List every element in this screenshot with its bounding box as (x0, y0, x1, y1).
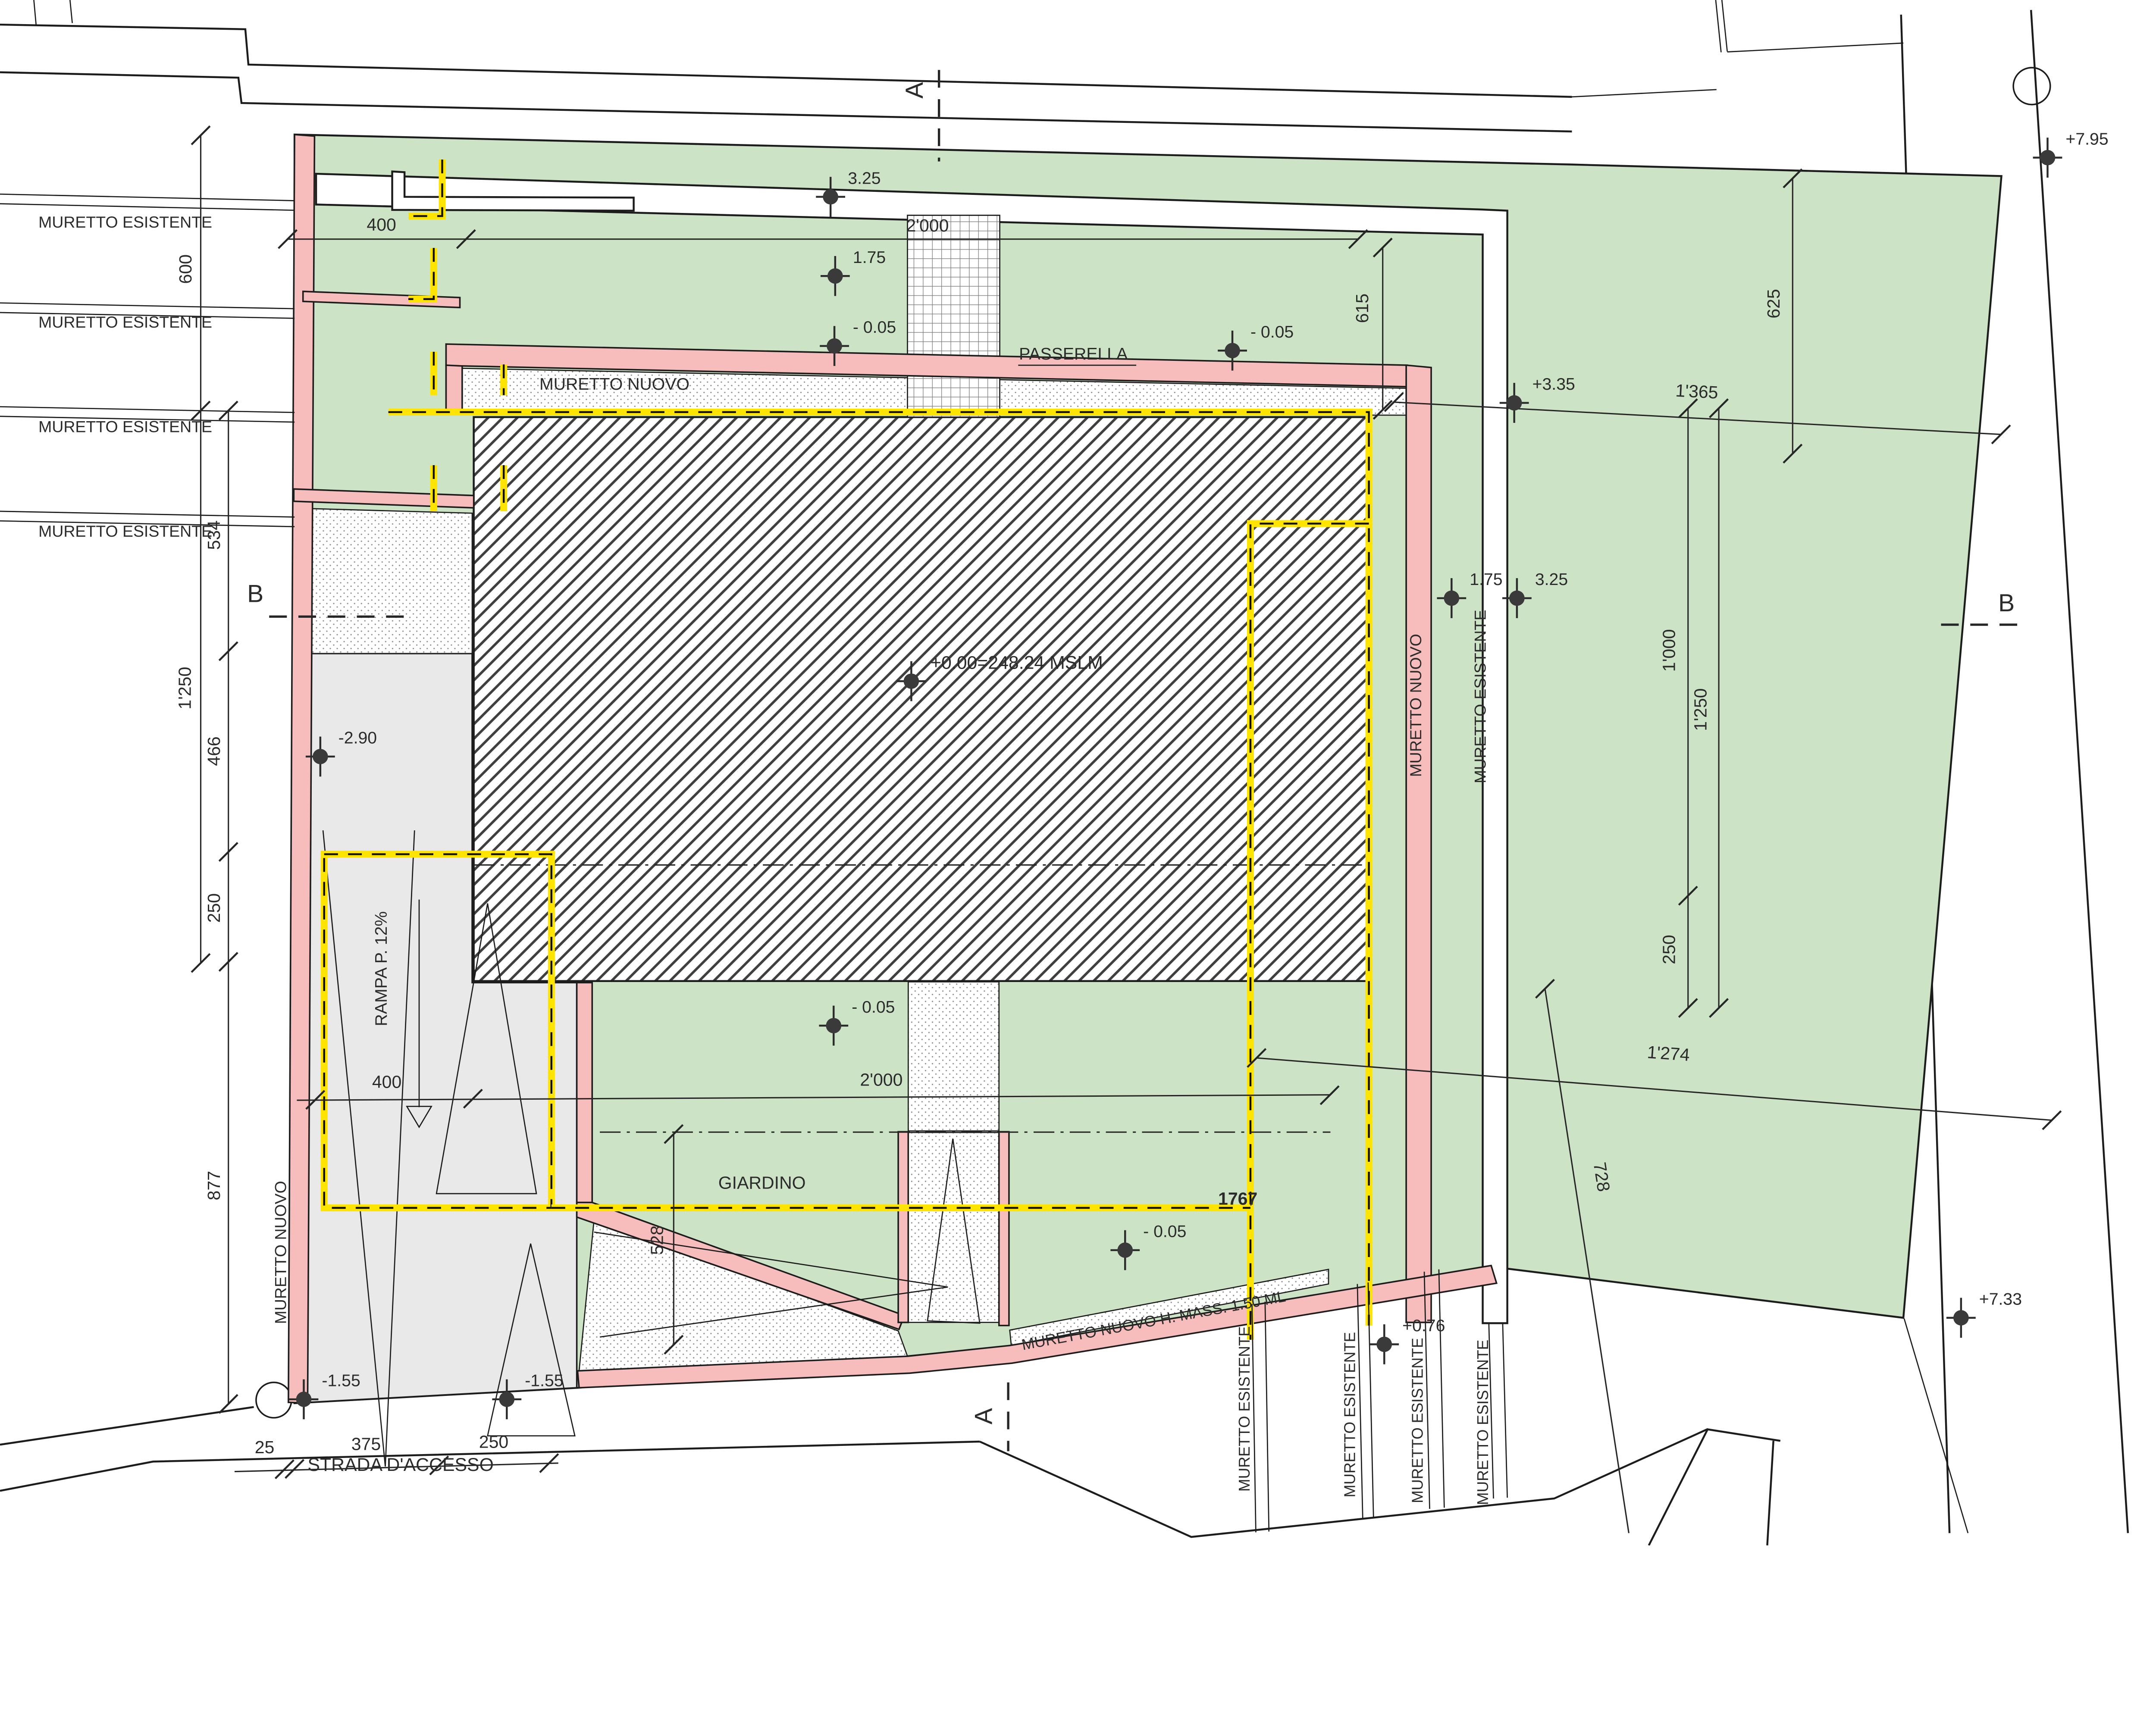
survey-circle-top-right (2013, 68, 2050, 105)
site-plan-sheet: MURETTO ESISTENTE MURETTO ESISTENTE MURE… (0, 0, 2156, 1545)
wall-label-bottom3: MURETTO ESISTENTE (1409, 1338, 1426, 1503)
wall-label-row3: MURETTO ESISTENTE (38, 417, 212, 435)
dim-bot-375: 375 (351, 1434, 381, 1454)
label-muretto-nuovo-right: MURETTO NUOVO (1407, 634, 1425, 777)
section-b-left: B (247, 580, 263, 607)
wall-label-bottom1: MURETTO ESISTENTE (1236, 1326, 1253, 1492)
elev-155-a: -1.55 (322, 1371, 360, 1390)
label-muretto-nuovo-left: MURETTO NUOVO (271, 1181, 289, 1324)
dim-top-400: 400 (367, 215, 396, 235)
elev-795: +7.95 (2065, 129, 2108, 148)
dim-right-250: 250 (1659, 935, 1679, 964)
dim-left-600: 600 (175, 254, 195, 284)
label-strada: STRADA D'ACCESSO (307, 1455, 493, 1475)
label-rampa: RAMPA P. 12% (372, 911, 391, 1026)
elev-155-b: -1.55 (525, 1371, 563, 1390)
elev-005-lower: - 0.05 (1143, 1222, 1186, 1241)
elev-290: -2.90 (338, 729, 377, 748)
section-a-top: A (901, 82, 928, 99)
wall-label-row1: MURETTO ESISTENTE (38, 213, 212, 231)
section-b-right: B (1998, 589, 2015, 617)
survey-circle-bottom-left (256, 1383, 291, 1418)
dim-ramp-400: 400 (372, 1072, 401, 1092)
dim-right-615: 615 (1352, 294, 1372, 323)
dim-bot-25: 25 (255, 1437, 275, 1457)
dim-left-534: 534 (204, 520, 224, 550)
wall-label-bottom4: MURETTO ESISTENTE (1474, 1340, 1492, 1505)
elev-335: +3.35 (1532, 375, 1575, 394)
label-muretto-esistente-right: MURETTO ESISTENTE (1471, 610, 1489, 783)
dim-giardino-528: 528 (647, 1226, 667, 1255)
dim-right-1274: 1'274 (1646, 1042, 1690, 1065)
site-plan-drawing: MURETTO ESISTENTE MURETTO ESISTENTE MURE… (0, 0, 2156, 1545)
dim-bot-250: 250 (479, 1432, 508, 1451)
label-parcel-1767: 1767 (1218, 1189, 1257, 1209)
label-passerella: PASSERELLA (1019, 344, 1128, 363)
label-giardino: GIARDINO (718, 1173, 806, 1192)
elev-175-right: 1.75 (1470, 570, 1502, 589)
elev-325-right: 3.25 (1535, 570, 1568, 589)
elev-005-giardino: - 0.05 (852, 998, 895, 1017)
elev-076: +0.76 (1402, 1316, 1445, 1335)
wall-label-row2: MURETTO ESISTENTE (38, 313, 212, 331)
dim-left-877: 877 (204, 1171, 224, 1200)
building-footprint (474, 417, 1368, 981)
label-muretto-nuovo-top: MURETTO NUOVO (539, 375, 689, 394)
dim-left-250: 250 (204, 893, 224, 923)
dim-giardino-2000: 2'000 (860, 1070, 903, 1089)
elev-733: +7.33 (1979, 1290, 2022, 1309)
dim-right-1250: 1'250 (1691, 688, 1711, 731)
wall-label-bottom2: MURETTO ESISTENTE (1341, 1332, 1358, 1498)
dim-right-1000: 1'000 (1659, 629, 1679, 672)
dim-top-2000: 2'000 (906, 216, 949, 235)
passerella-walkway (908, 215, 1000, 417)
elev-175-top: 1.75 (853, 248, 886, 267)
wall-label-row4: MURETTO ESISTENTE (38, 522, 212, 540)
elev-000-mslm: +0.00=248.24 MSLM (931, 653, 1103, 673)
left-existing-wall-rows: MURETTO ESISTENTE MURETTO ESISTENTE MURE… (0, 194, 295, 540)
elev-005-top: - 0.05 (853, 318, 896, 337)
section-a-bottom: A (970, 1408, 998, 1424)
dim-right-625: 625 (1764, 289, 1783, 318)
dim-left-1250: 1'250 (175, 667, 194, 710)
elev-005-pass: - 0.05 (1250, 322, 1294, 341)
elev-325-top: 3.25 (848, 169, 881, 188)
dim-left-466: 466 (204, 736, 224, 766)
